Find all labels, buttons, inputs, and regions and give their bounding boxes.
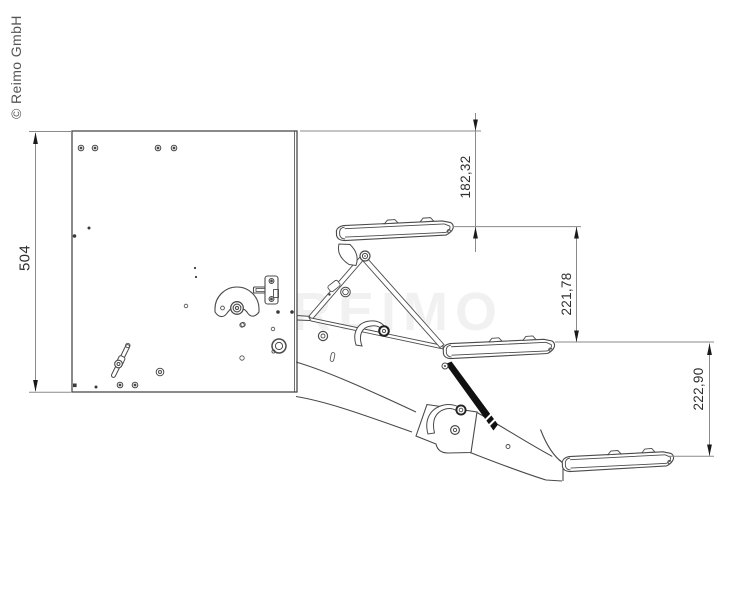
copyright-notice: © Reimo GmbH [8,15,24,119]
dim-label-step3-drop: 222,90 [691,367,706,410]
dim-arrow-up-icon [574,227,579,239]
dim-arrow-down-icon [707,445,712,456]
dim-arrow-up-icon [33,132,38,144]
step-1-tread [336,217,454,241]
dim-label-step2-drop: 221,78 [559,272,574,315]
technical-drawing: REIMO [0,0,731,600]
lower-support-arm [296,362,563,481]
step-3-tread [562,448,674,472]
dim-arrow-down-icon [33,380,38,392]
dim-label-step1-drop: 182,32 [458,155,473,198]
dim-arrow-up-icon [473,227,478,239]
dim-label-overall-height: 504 [17,245,34,271]
dimension-step1-drop: 182,32 [458,113,478,252]
dimension-step3-drop: 222,90 [691,343,712,456]
dimension-step2-drop: 221,78 [559,227,579,342]
mounting-plate [72,131,297,392]
dim-arrow-down-icon [473,120,478,131]
drawing-canvas: REIMO [0,0,731,600]
dim-arrow-up-icon [707,343,712,355]
dimension-overall-height: 504 [17,132,38,391]
dim-arrow-down-icon [574,331,579,343]
